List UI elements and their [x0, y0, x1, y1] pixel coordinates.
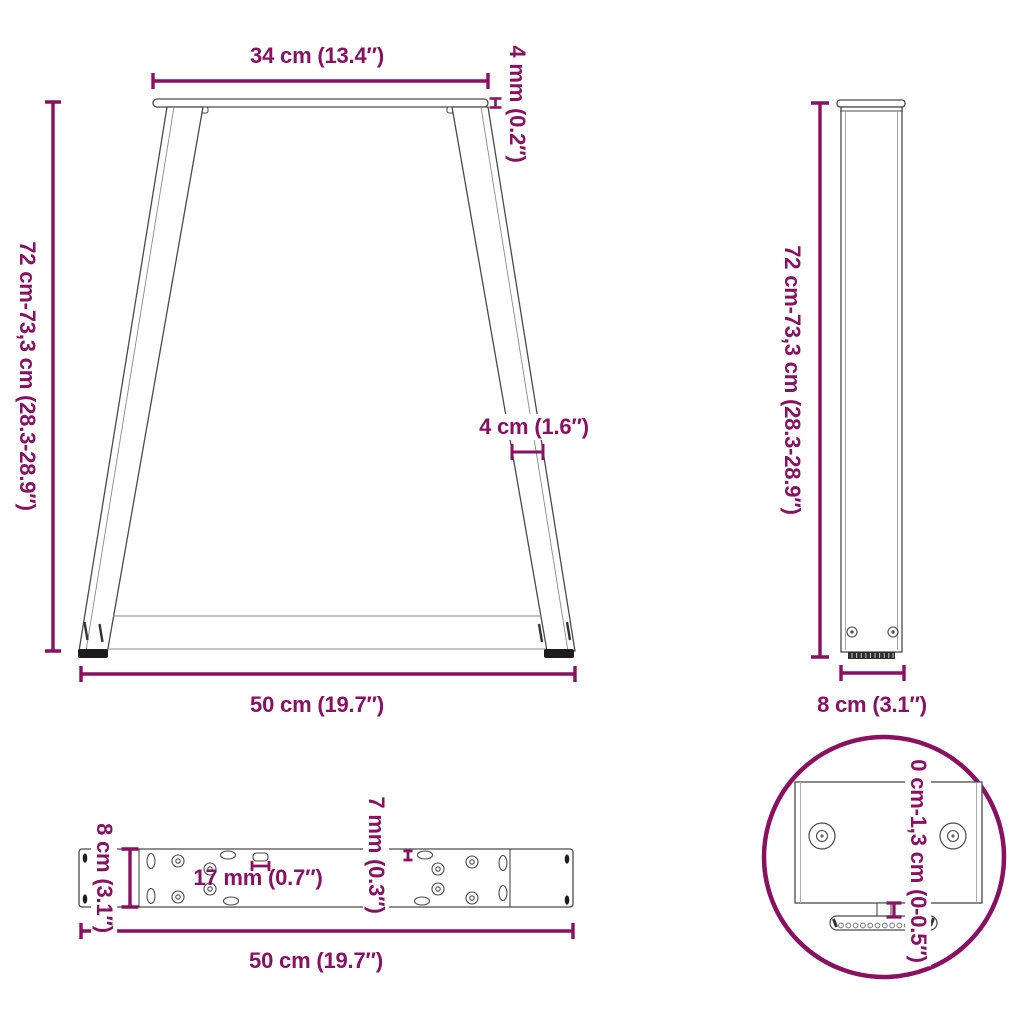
detail-foot-stem [877, 903, 891, 917]
dim-line-side-depth [841, 665, 904, 681]
front-left-leg-edge-line [86, 107, 174, 651]
detail-leg-bottom [795, 782, 982, 903]
dim-label-front-bottom-width: 50 cm (19.7″) [250, 693, 384, 717]
dim-label-front-plate-thickness: 4 mm (0.2″) [505, 45, 529, 162]
side-view-drawing [837, 100, 905, 659]
dim-label-plate-length: 50 cm (19.7″) [249, 949, 383, 973]
dim-label-front-top-width: 34 cm (13.4″) [250, 44, 384, 68]
front-right-foot [544, 649, 574, 658]
plate-outline [79, 849, 573, 907]
dim-label-side-height: 72 cm-73,3 cm (28.3-28.9″) [780, 245, 804, 515]
side-top-plate [837, 100, 905, 107]
dim-marker-plate-thickness [490, 99, 502, 108]
side-serrated-foot [848, 652, 895, 659]
side-leg-body [841, 107, 902, 652]
front-right-leg-edge-line [481, 107, 568, 651]
front-top-plate [153, 99, 488, 107]
dim-line-plate-length [81, 923, 573, 939]
dim-line-front-height [45, 102, 61, 651]
dim-label-plate-slot-length: 17 mm (0.7″) [193, 866, 322, 890]
plate-top-view-drawing [79, 849, 573, 907]
dim-label-plate-slot-width: 7 mm (0.3″) [363, 792, 389, 917]
dim-line-side-height [811, 103, 829, 657]
dim-label-front-leg-width: 4 cm (1.6″) [475, 414, 593, 440]
dimension-diagram: 34 cm (13.4″) 4 mm (0.2″) 72 cm-73,3 cm … [0, 0, 1024, 1024]
dim-label-front-height: 72 cm-73,3 cm (28.3-28.9″) [15, 241, 39, 511]
front-left-leg [79, 107, 203, 651]
foot-detail-drawing [764, 737, 1004, 977]
front-view-drawing [78, 99, 575, 658]
dim-label-side-depth: 8 cm (3.1″) [817, 693, 927, 717]
dim-label-foot-adjustment-range: 0 cm-1,3 cm (0-0.5″) [905, 755, 931, 966]
dim-label-plate-depth: 8 cm (3.1″) [91, 819, 117, 937]
front-right-leg [452, 107, 575, 651]
dim-line-bottom-width [81, 666, 575, 682]
dim-line-top-width [153, 73, 488, 89]
front-left-foot [78, 649, 108, 658]
